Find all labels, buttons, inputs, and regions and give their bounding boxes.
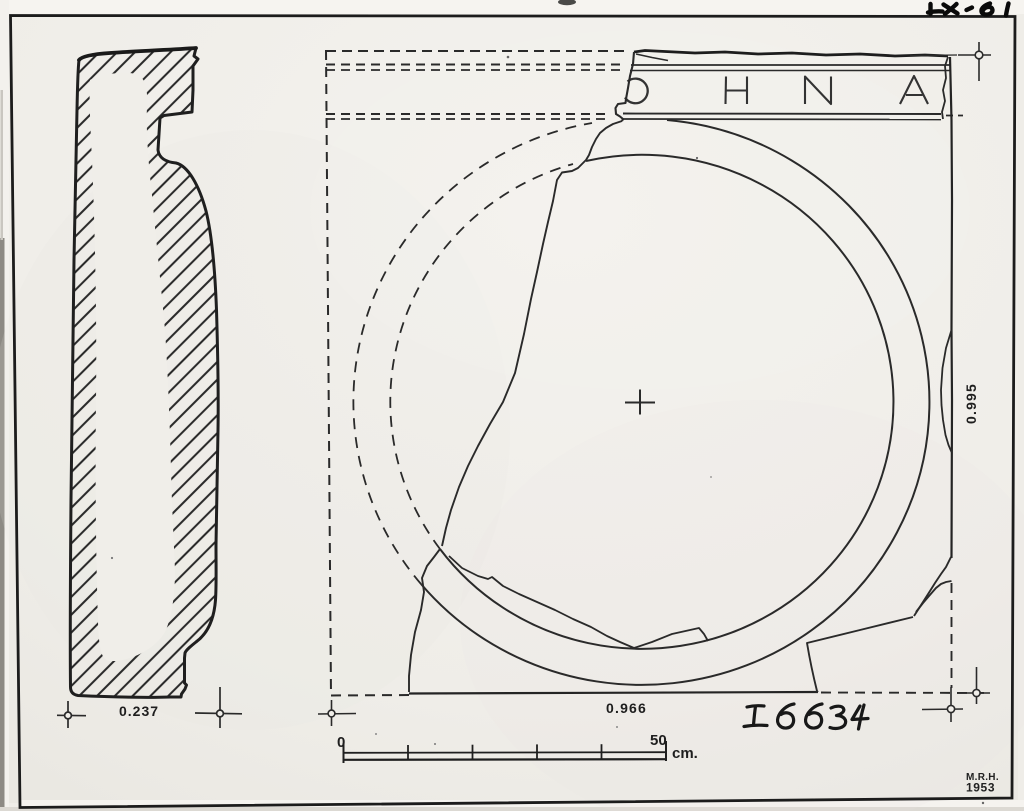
svg-text:0.995: 0.995	[963, 383, 979, 424]
svg-text:1953: 1953	[966, 781, 995, 795]
svg-text:0.966: 0.966	[606, 700, 647, 716]
svg-text:0.237: 0.237	[119, 703, 159, 719]
svg-text:0: 0	[337, 734, 345, 751]
svg-text:cm.: cm.	[672, 745, 698, 762]
svg-text:50: 50	[650, 732, 667, 749]
